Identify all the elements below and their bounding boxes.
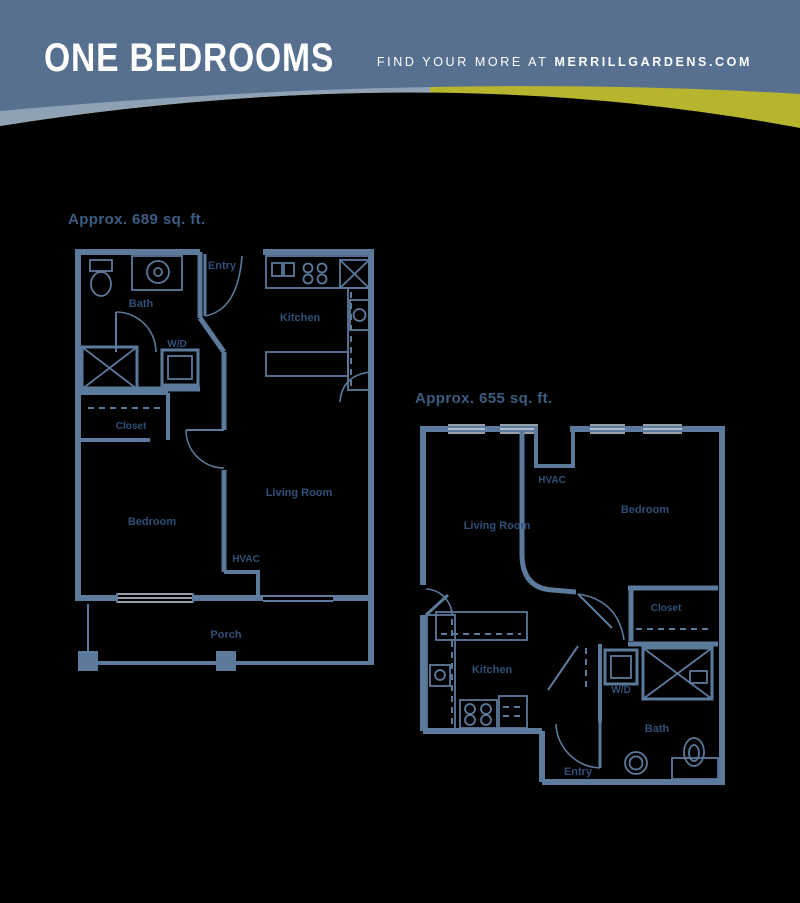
tagline-prefix: FIND YOUR MORE AT xyxy=(377,55,549,69)
plan1-hvac-closet xyxy=(224,572,258,598)
plan2-bifold-door xyxy=(548,646,586,692)
toilet-icon xyxy=(90,260,112,296)
plan2-area-label: Approx. 655 sq. ft. xyxy=(415,390,553,407)
room-label-bedroom-2: Bedroom xyxy=(621,504,670,516)
refrigerator-icon xyxy=(340,260,369,288)
room-label-bedroom: Bedroom xyxy=(128,516,177,528)
plan2-washer-dryer-icon xyxy=(605,650,637,684)
plan2-hvac-closet xyxy=(536,426,573,466)
washer-dryer-icon xyxy=(162,350,198,385)
room-label-living-room: Living Room xyxy=(266,487,333,499)
kitchen-sink-icon xyxy=(272,263,294,276)
room-label-kitchen-2: Kitchen xyxy=(472,664,513,676)
plan1-porch-slider-door xyxy=(263,596,333,601)
stove-icon xyxy=(304,264,327,284)
floor-plan-1: Approx. 689 sq. ft. xyxy=(55,195,395,685)
room-label-wd-2: W/D xyxy=(611,685,630,696)
room-label-hvac: HVAC xyxy=(232,554,260,565)
plan2-dishwasher-icon xyxy=(499,696,527,728)
room-label-entry-2: Entry xyxy=(564,766,593,778)
room-label-kitchen: Kitchen xyxy=(280,312,321,324)
plan2-toilet-icon xyxy=(625,752,647,774)
shower-icon xyxy=(82,347,137,389)
room-label-closet-2: Closet xyxy=(651,603,682,614)
floor-plan-2: Approx. 655 sq. ft. xyxy=(400,378,750,798)
bath-sink-icon xyxy=(132,256,182,290)
header-banner: ONE BEDROOMS FIND YOUR MORE AT MERRILLGA… xyxy=(0,0,800,180)
room-label-closet: Closet xyxy=(116,421,147,432)
plan1-interior-walls xyxy=(78,252,258,598)
plan1-area-label: Approx. 689 sq. ft. xyxy=(68,211,206,228)
room-label-hvac-2: HVAC xyxy=(538,475,566,486)
room-label-bath-2: Bath xyxy=(645,723,670,735)
room-label-wd: W/D xyxy=(167,339,186,350)
wall-oven-icon xyxy=(350,300,369,330)
page-title: ONE BEDROOMS xyxy=(44,36,334,81)
plan2-bedroom-door-arc xyxy=(578,594,624,640)
plan2-bath-sink-icon xyxy=(672,738,718,779)
header-tagline: FIND YOUR MORE AT MERRILLGARDENS.COM xyxy=(377,55,752,69)
flyer-page: ONE BEDROOMS FIND YOUR MORE AT MERRILLGA… xyxy=(0,0,800,903)
plan1-bedroom-window xyxy=(117,593,193,603)
header-curves-graphic xyxy=(0,0,800,180)
plan2-shower-icon xyxy=(643,648,712,699)
room-label-entry: Entry xyxy=(208,260,237,272)
room-label-porch: Porch xyxy=(210,629,241,641)
porch-post xyxy=(78,651,98,671)
plan2-stove-icon xyxy=(460,700,497,728)
plan1-bedroom-door-arc xyxy=(186,430,224,468)
room-label-living-room-2: Living Room xyxy=(464,520,531,532)
plan2-entry-door-arc xyxy=(556,722,600,768)
tagline-brand-link[interactable]: MERRILLGARDENS.COM xyxy=(555,55,753,69)
plan2-kitchen-sink-icon xyxy=(430,665,450,686)
room-label-bath: Bath xyxy=(129,298,154,310)
plan2-patio-door-arc xyxy=(426,589,452,615)
porch-post xyxy=(216,651,236,671)
